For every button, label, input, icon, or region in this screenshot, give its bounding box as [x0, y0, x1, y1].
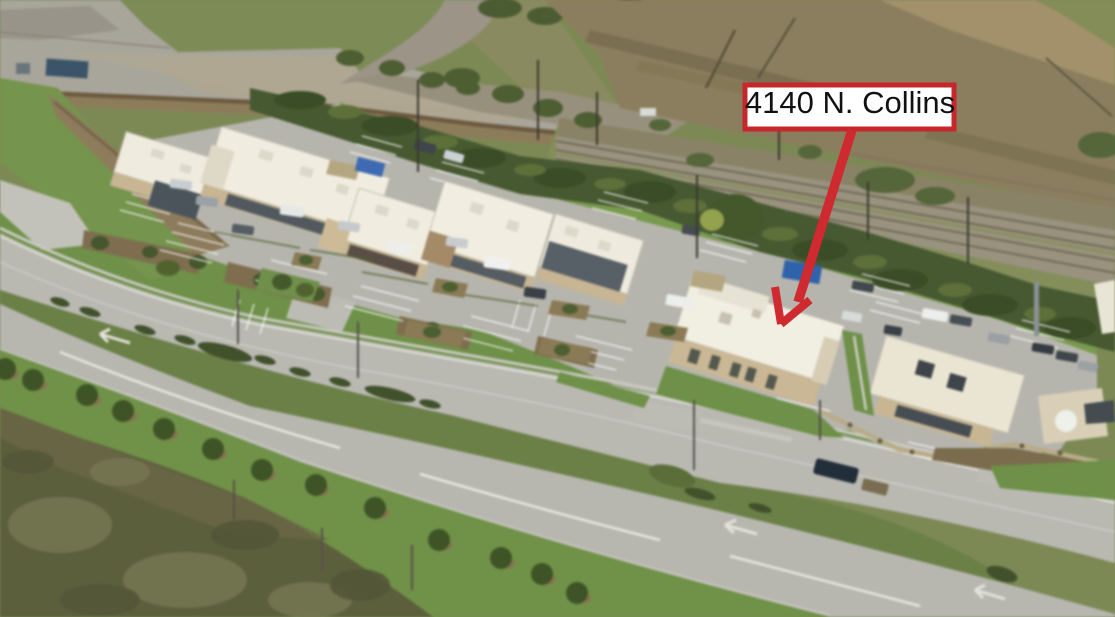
svg-text:4140 N. Collins: 4140 N. Collins — [745, 85, 955, 120]
